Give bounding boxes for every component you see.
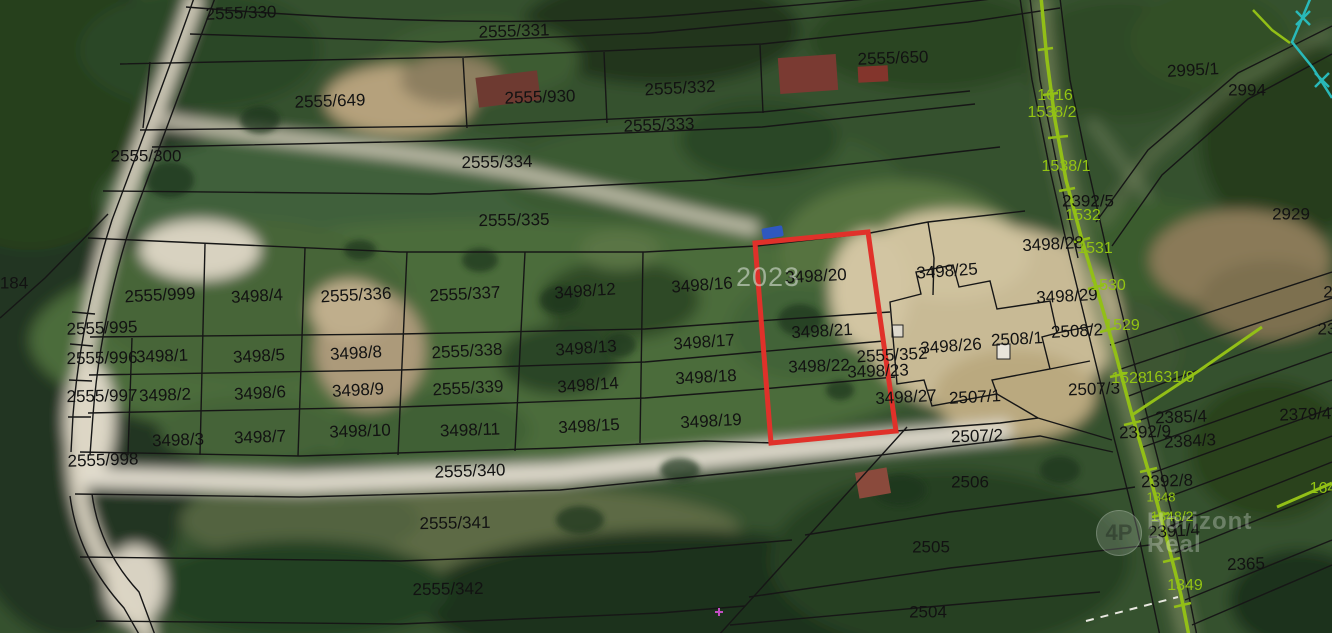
small-building (997, 344, 1010, 359)
satellite-terrain (0, 0, 1332, 633)
small-building (892, 325, 903, 337)
building-roof (858, 65, 889, 83)
building-roof (778, 54, 838, 94)
cadastral-map[interactable]: 2555/3302555/3312555/6492555/9302555/332… (0, 0, 1332, 633)
building-roof (855, 467, 891, 498)
map-canvas (0, 0, 1332, 633)
